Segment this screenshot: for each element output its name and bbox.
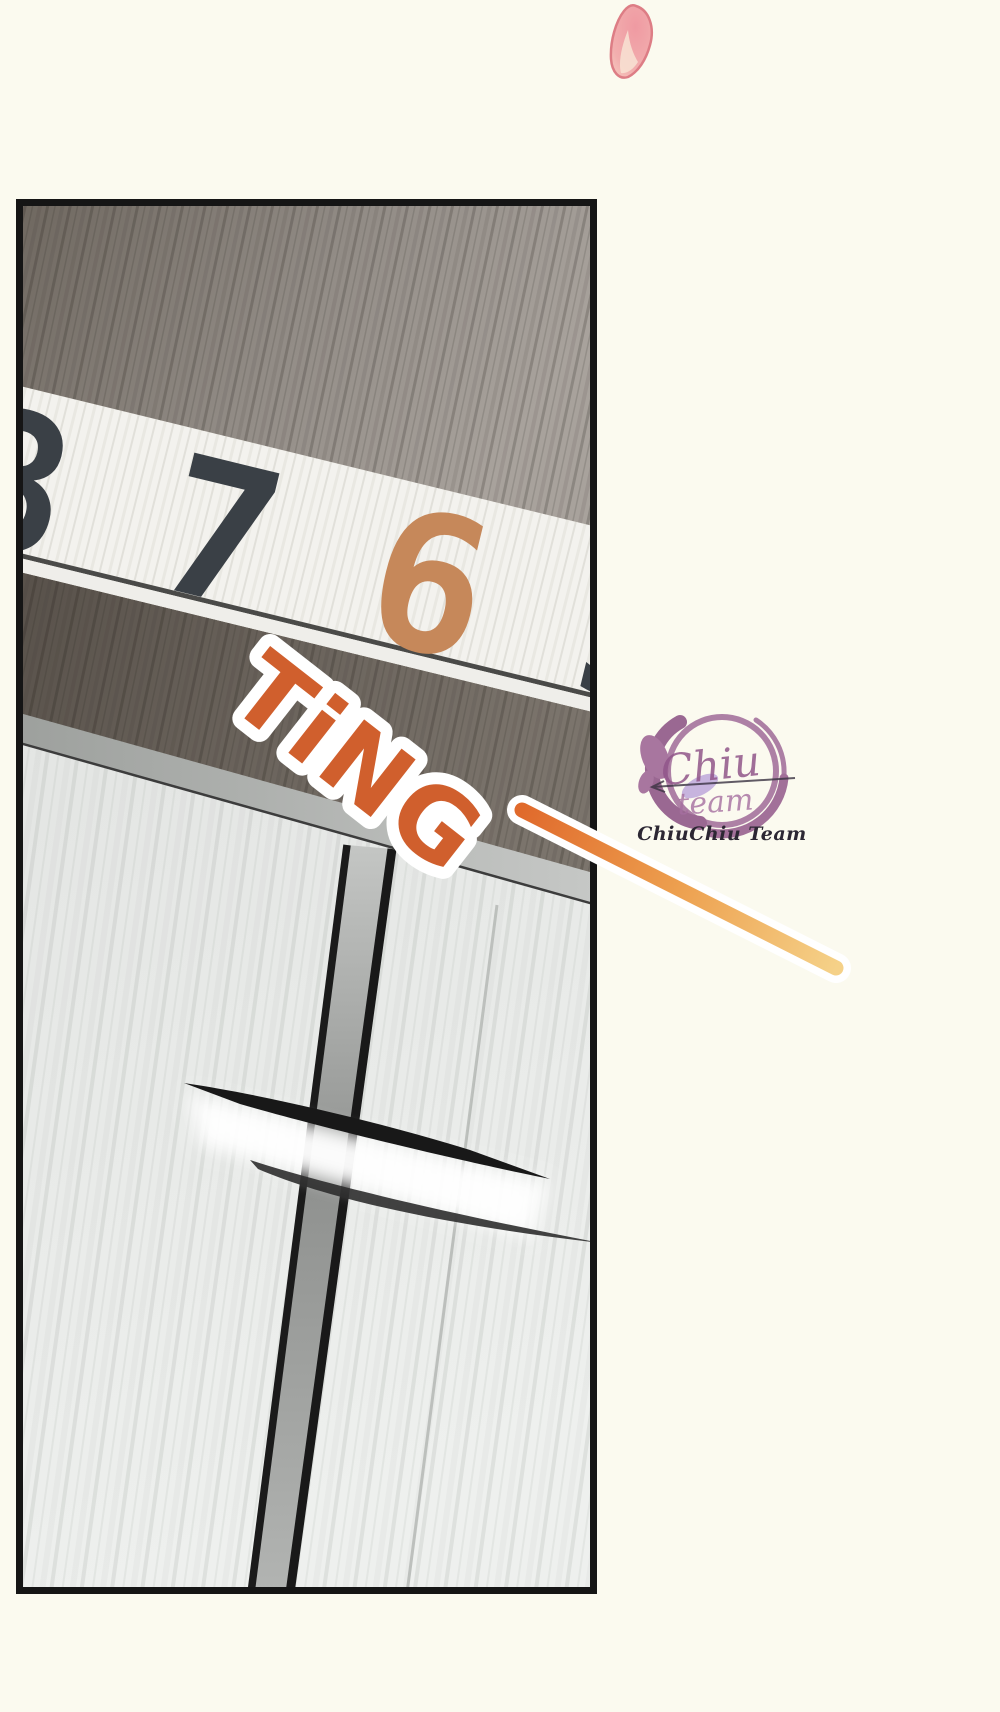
elevator-panel-scene: 8 7 6 5 4 3 TiNG [0, 199, 1000, 1593]
digit-3: 3 [973, 617, 1000, 857]
petal-decoration [611, 5, 652, 77]
team-watermark: Chiu team ChiuChiu Team [634, 717, 806, 845]
digit-6-active: 6 [347, 464, 504, 704]
digit-7: 7 [139, 413, 296, 653]
watermark-team-name: ChiuChiu Team [637, 823, 807, 845]
comic-page: 8 7 6 5 4 3 TiNG [0, 0, 1000, 1712]
comic-artwork: 8 7 6 5 4 3 TiNG [0, 0, 1000, 1712]
watermark-script-bottom: team [676, 782, 754, 822]
digit-4: 4 [765, 566, 922, 806]
digit-5: 5 [556, 515, 713, 755]
